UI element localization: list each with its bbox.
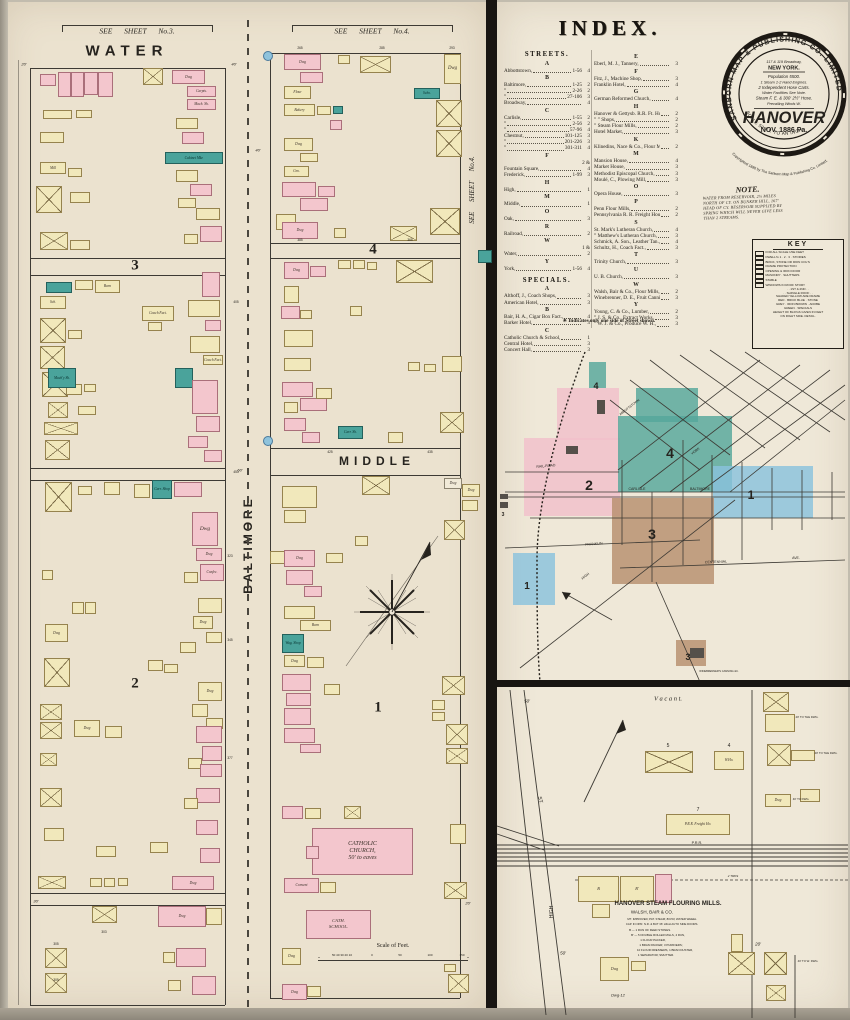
map-label: 309 [53,978,58,982]
building [76,110,92,118]
building [164,664,178,673]
building-label: Dwg [179,914,186,918]
building: Dwg [282,984,307,1000]
building [188,300,220,317]
map-label: 425 [327,450,332,454]
district-number: 3 [685,652,690,662]
index-entry-part [624,133,669,134]
building [184,234,198,244]
building: Mach'y Sh. [48,368,76,388]
building [192,704,208,717]
index-entry-part [517,191,581,192]
overview-building-mark [500,502,508,508]
building [40,318,66,343]
building [45,482,72,512]
overview-building-mark [597,400,605,414]
map-label: 20' [21,62,26,67]
building-label: Dwg [448,66,457,72]
district-number: 4 [666,445,674,461]
map-label: V a c a n t. [654,696,682,703]
building [645,751,693,773]
street-name: WINEBRENNER'S CANNING &C. [699,669,739,673]
building [202,746,222,761]
seal-info-lines: Population 5500.1 Steam 1-2 Hand Engines… [756,74,812,106]
index-entry-part [643,80,669,81]
building [631,961,646,971]
building [300,72,323,83]
index-entry-part: Chestnut, [504,133,524,139]
building [40,232,68,250]
map-label: 405 [233,300,238,304]
key-row-text: ON RIGHT SIDE. DETAIL. [780,315,815,319]
map-label: P.R.R. [692,841,703,845]
index-entry: Klinedins, Nace & Co., Flour Mills2 [594,144,678,150]
building [196,416,220,432]
building [396,260,433,283]
index-footnote: ✳ Indicates only one side of Street show… [530,318,688,324]
building [440,412,464,433]
building: Coach Fact. [142,306,174,321]
index-entry-part: 3 [670,61,678,67]
index-entry-part [561,339,581,340]
map-label: 345 [227,638,232,642]
map-label: 100 [427,953,432,957]
building: CATHOLIC CHURCH, 50' to eaves [312,828,413,875]
building-label: Dwg [295,142,302,146]
map-line [212,25,213,32]
index-entry-part [540,170,581,171]
index-entry-part: 4 [670,96,678,102]
building [206,908,222,925]
building: Scho. [414,88,440,99]
index-letter-header: B [504,307,590,314]
map-line [30,68,225,69]
building [284,358,311,371]
building [190,184,212,196]
building [360,56,391,73]
building-label: Dwg [291,990,298,994]
page-divider [486,0,497,1016]
building-label: Dwg [185,75,192,79]
building [307,657,324,668]
building [178,198,196,208]
index-entry-part [650,313,669,314]
map-label: B′ — 5 DOUBLE ROLLER MILLS, 4 RUN, [631,933,685,937]
building [188,436,208,448]
building [85,602,96,614]
building [192,976,216,995]
map-line [18,60,19,1005]
index-entry-part [661,243,669,244]
building: Dwg [444,478,462,489]
map-label: 40' [255,148,260,153]
building [592,904,610,918]
index-entry-part: Moulé, C., Plowing Mill, [594,177,646,183]
index-entry-part: Railroad, [504,231,523,237]
index-entry-part [658,237,669,238]
index-entry-part: 1 [582,201,590,207]
map-label: 20' [755,942,761,947]
seal-info-line: Population 5500. [768,74,800,79]
building-label: Convent [296,883,308,887]
index-letter-header: O [594,184,678,191]
overview-building-mark [690,648,704,658]
seal-date: NOV. 1886 Pa. [761,127,807,134]
building-label: Dwg [206,552,213,556]
index-letter-header: H [594,104,678,111]
index-entry: High,1 [504,187,590,193]
index-entry-part: Franklin Hotel, [594,82,626,88]
index-entry-part: Opera House, [594,191,623,197]
building [40,74,56,86]
building: CATH. SCHOOL. [306,910,371,939]
index-entry-part: 4 [582,68,590,74]
index-entry: Eberl, M. J., Tannery,3 [594,61,678,67]
index-letter-header: W [594,282,678,289]
index-entry-part: Hotel Market, [594,129,623,135]
index-entry-part: 3 [582,172,590,178]
street-name: FRANKLIN [585,541,603,546]
index-entry-part [629,162,669,163]
map-label: 40' TO THE DWG. [815,751,838,755]
index-entry: Railroad,2 [504,231,590,237]
district-number: 4 [593,381,598,391]
building [284,606,315,619]
index-letter-header: C [504,108,590,115]
building-label: Carr. Shop [154,487,170,491]
map-label: HANOVER STEAM FLOURING MILLS. [615,901,722,907]
building-label: Dwg [291,659,298,663]
map-label: 40' [231,62,236,67]
building [766,985,786,1001]
index-entry: U. B. Church,3 [594,274,678,280]
index-entry-part [647,181,669,182]
building [286,693,311,706]
map-label: 435 [427,450,432,454]
building-label: Mach'y Sh. [54,376,70,380]
index-entry-part [624,195,669,196]
seal-address1: 117 & 119 Broadway, [766,60,802,64]
building [655,874,672,903]
building [731,934,743,952]
map-label: 20' [465,901,470,906]
building-label: Dwg [296,556,303,560]
building [446,748,468,764]
building [388,432,403,443]
seal-info-line: Water Facilities See Note. [762,91,806,95]
building-label: Dwg [297,228,304,232]
index-letter-header: W [504,238,590,245]
index-entry-part: 3 [670,245,678,251]
building-label: Wag. Shop [285,641,300,645]
index-letter-header: U [594,267,678,274]
district-number: 3 [648,526,656,542]
map-label: 1 BRAN PACKER; 3 PURIFIERS; [639,943,682,947]
building: B′ [620,876,654,902]
index-entry: Franklin Hotel,4 [594,82,678,88]
building [306,846,319,859]
building: Flour [284,86,311,99]
building [450,824,466,844]
index-entry-part: 2 [670,144,678,150]
index-entry-part [654,231,669,232]
map-label: 303 [101,930,106,934]
building [320,882,336,893]
index-entry-part: York, [504,266,515,272]
index-street-column: STREETS. AAbbottstown,1-564BBaltimore,1-… [504,48,590,353]
map-label: 7 [697,807,700,813]
building [71,72,84,97]
building-label: Dwg [200,526,210,532]
building [70,192,90,203]
streets-header: STREETS. [504,50,590,59]
building [300,310,312,319]
index-entry-part: 4 [582,100,590,106]
baltimore-street-centerline [247,20,249,1008]
building-label: Dwg [611,967,618,971]
index-entry-part [515,220,581,221]
map-label: SEE SHEET No.3. [99,27,174,36]
index-entry-part: Schultz, H., Coach Fact., [594,245,646,251]
map-label: 50' [560,951,566,956]
district-number: 2 [585,477,593,493]
map-label: 3 [131,258,139,275]
building [200,848,220,863]
building-label: Dwg [775,798,782,802]
index-entry: Oak,3 [504,216,590,222]
building [444,964,456,972]
building [344,806,361,819]
building [284,708,311,725]
index-entry-part [627,263,669,264]
index-entry-part: Baltimore, [504,82,526,88]
building [436,130,462,157]
index-entry: Middle,1 [504,201,590,207]
building [68,330,82,339]
index-entry-part [518,255,581,256]
building [78,486,92,495]
index-entry-part [631,210,669,211]
building-label: Dwg [190,881,197,885]
index-letter-header: A [504,286,590,293]
index-entry-part: 1 [582,187,590,193]
building-label: Sch. [50,300,56,304]
map-label: 2 [131,676,139,693]
street-name: AVE. [792,556,800,560]
index-entry-part: Oak, [504,216,514,222]
map-label: 1 SEPARATOR; SMUTTER. [638,953,674,957]
index-entry-part [527,86,571,87]
building: Dwg [196,548,222,561]
building [448,974,469,993]
index-entry-part [524,235,581,236]
district-number: 1 [524,581,530,592]
district-number: 3 [502,512,505,518]
building [150,842,168,853]
index-entry-part: Frederick, [504,172,525,178]
north-arrow [616,720,626,734]
building [432,700,445,710]
street-name: BALTIMORE [690,487,711,491]
building [307,986,321,997]
index-letter-header: M [504,194,590,201]
overview-building-mark [566,446,578,454]
index-entry-part: American Hotel, [504,300,539,306]
building: Dwg [284,550,315,567]
building-label: Coach Fact. [149,311,167,315]
building [198,598,222,613]
building: B [578,876,619,902]
building [300,153,318,162]
index-entry: Schultz, H., Coach Fact.,3 [594,245,678,251]
map-label: 40' TO DWG. [793,797,810,801]
index-letter-header: T [594,252,678,259]
building-label: P.R.R. Freight Ho. [685,822,712,826]
map-line [30,468,225,469]
building [92,906,117,923]
map-line [270,243,460,244]
building [174,482,202,497]
paper-left-edge [0,0,8,1020]
building [104,878,115,887]
building-label: W.Ho. [725,758,734,762]
index-entry-part [507,98,566,99]
building [362,476,390,495]
index-entry-part [661,115,669,116]
index-entry-part: 3 [670,129,678,135]
index-entry-part: Carlisle, [504,115,521,121]
building [118,878,128,886]
map-line [30,258,225,259]
index-entry-part: 27-106 [567,94,582,100]
index-entry-part: Eberl, M. J., Tannery, [594,61,639,67]
index-entry-part [527,104,581,105]
map-label: 1 [374,700,382,717]
index-entry-part: Barker Hotel, [504,320,532,326]
street-line [510,690,546,1015]
index-entry-part [616,121,669,122]
index-entry-part: 4 [582,266,590,272]
building [104,482,120,495]
building [334,228,346,238]
index-entry-part [516,270,571,271]
key-title: KEY [773,241,823,250]
map-label: 0 [371,953,373,957]
water-hydrant-dot [263,51,273,61]
index-entry-part: Water, [504,251,517,257]
index-entry-part: Klinedins, Nace & Co., Flour Mills [594,144,660,150]
building [284,418,306,431]
street-line [524,690,566,1015]
index-entry: American Hotel,3 [504,300,590,306]
map-key-legend: KEY FOR ALL SCALE USE FEETDWELL'G 1 · 2 … [752,239,844,349]
index-entry-part [661,299,669,300]
building: Barn [300,620,331,631]
map-label: WALSH, BAIR & CO. [631,910,673,915]
map-line [30,1005,225,1006]
building: Dwg [284,54,321,70]
section-divider [497,680,850,687]
index-entry-part: Trinity Church, [594,259,626,265]
building [184,572,198,583]
building-label: Barn [104,284,111,288]
map-label: 305 [53,942,58,946]
index-entry: Water,1 & 2 [504,245,590,257]
building-label: Dwg [299,60,306,64]
building [353,260,365,269]
index-entry-part: U. B. Church, [594,274,623,280]
building: Dwg [198,682,222,701]
seal-info-line: Prevailing Winds W. [767,102,801,106]
index-entry-part: High, [504,187,516,193]
building [310,266,326,277]
building [40,788,62,807]
building-label: Barn [312,623,319,627]
building [284,330,313,347]
building-label: Scho. [423,91,431,95]
building: Dwg [282,222,318,239]
index-entry: Winebrenner, D. E., Fruit Canning,3 [594,295,678,301]
building [45,440,70,460]
district-number: 1 [748,488,755,502]
index-entry-part: 3 [582,300,590,306]
building-label: Dwg [84,726,91,730]
index-entry-part [540,304,581,305]
building [442,676,465,695]
index-entry-part: 1 & 2 [582,245,590,257]
building [192,380,218,414]
building-label: Dwg [207,689,214,693]
building: W.Ho. [714,751,744,770]
index-entry-part [507,150,564,151]
building: Dwg [74,720,100,737]
map-label: 2 TRKS [728,874,739,878]
building [40,132,64,143]
index-entry-part: 3 [670,259,678,265]
map-label: 377 [227,756,232,760]
index-letter-header: S [594,220,678,227]
map-label: 150 [459,953,464,957]
water-note: NOTE. WATER FROM RESERVOIR, 2½ MILESNORT… [702,181,850,221]
building [763,692,789,712]
map-label: 385 [297,238,302,242]
building [200,764,222,777]
building [42,570,53,580]
building [284,510,306,523]
index-entry-part: 3 [670,274,678,280]
building [196,208,220,220]
index-entry-part [638,127,669,128]
map-label: 323 [227,554,232,558]
index-entry-part [534,345,581,346]
building [75,280,93,290]
building-label: Cabinet Mkr. [185,156,204,160]
sanborn-publisher-seal: SANBORN MAP & PUBLISHING CO. LIMITED SCA… [716,24,850,176]
building-label: Bakery [294,108,304,112]
building [134,484,150,498]
map-label: 40' TO THE DWG. [796,715,819,719]
index-entry-part: 1-99 [572,172,582,178]
index-building-column: EEberl, M. J., Tannery,3FFitz, J., Machi… [594,48,678,328]
compass-rose [338,528,453,668]
building [40,704,62,720]
index-letter-header: E [594,54,678,61]
index-entry-part [507,92,571,93]
building [176,170,198,182]
building [40,346,65,369]
building [324,684,340,695]
building [765,714,795,732]
